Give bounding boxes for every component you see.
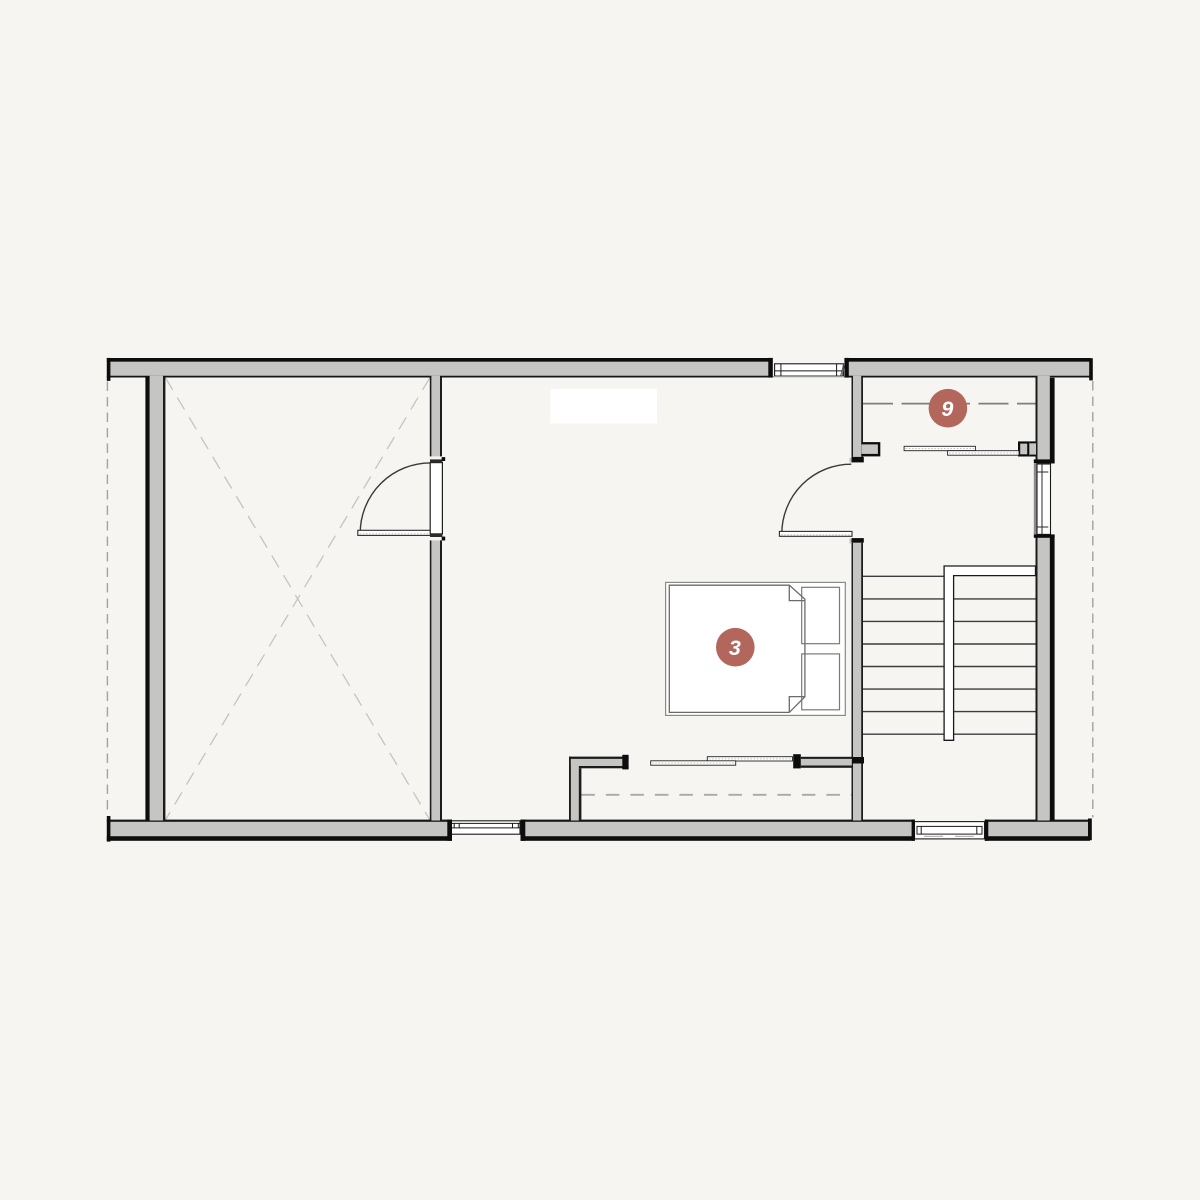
svg-text:3: 3 [729, 636, 741, 660]
svg-text:9: 9 [941, 397, 953, 421]
